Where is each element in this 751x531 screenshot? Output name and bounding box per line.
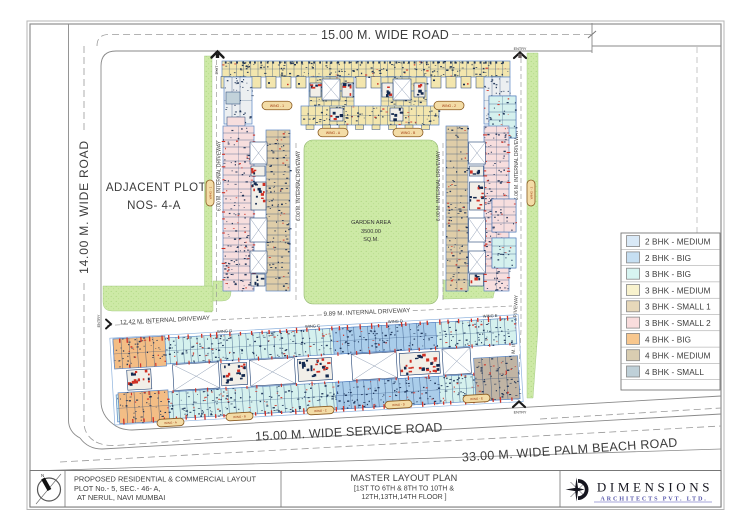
svg-text:PLOT No.- 5, SEC.- 46- A,: PLOT No.- 5, SEC.- 46- A,: [74, 484, 161, 493]
svg-text:WING - 1: WING - 1: [270, 104, 284, 108]
svg-text:6.00 M. INTERNAL DRIVEWAY: 6.00 M. INTERNAL DRIVEWAY: [296, 150, 302, 221]
svg-text:ENTRY: ENTRY: [514, 47, 527, 51]
svg-text:WING G: WING G: [217, 328, 232, 334]
svg-text:WING - C: WING - C: [314, 408, 328, 413]
svg-text:WING - B: WING - B: [233, 414, 246, 419]
svg-text:N: N: [41, 473, 44, 478]
svg-text:WING - B: WING - B: [401, 131, 416, 135]
svg-text:DIMENSIONS: DIMENSIONS: [597, 480, 713, 495]
svg-text:WING - 2: WING - 2: [529, 186, 533, 199]
svg-text:EXIT: EXIT: [214, 65, 219, 74]
svg-text:15.00 M. WIDE ROAD: 15.00 M. WIDE ROAD: [321, 28, 449, 42]
svg-text:ENTRY: ENTRY: [97, 314, 101, 327]
svg-text:4 BHK - MEDIUM: 4 BHK - MEDIUM: [645, 352, 711, 361]
svg-text:WING E: WING E: [483, 313, 498, 319]
svg-text:GARDEN AREA: GARDEN AREA: [351, 220, 391, 226]
svg-text:PROPOSED RESIDENTIAL & COMMERC: PROPOSED RESIDENTIAL & COMMERCIAL LAYOUT: [74, 475, 257, 484]
svg-text:WING - E: WING - E: [470, 396, 483, 401]
svg-text:6.00 M. INTERNAL DRIVEWAY: 6.00 M. INTERNAL DRIVEWAY: [436, 150, 442, 221]
svg-text:3 BHK - SMALL 2: 3 BHK - SMALL 2: [645, 319, 711, 328]
svg-text:MASTER LAYOUT PLAN: MASTER LAYOUT PLAN: [351, 473, 458, 483]
svg-text:2 BHK - MEDIUM: 2 BHK - MEDIUM: [645, 238, 711, 247]
svg-text:AT NERUL, NAVI MUMBAI: AT NERUL, NAVI MUMBAI: [77, 493, 165, 502]
svg-text:12TH,13TH,14TH FLOOR ]: 12TH,13TH,14TH FLOOR ]: [361, 494, 446, 501]
svg-text:14.00 M. WIDE ROAD: 14.00 M. WIDE ROAD: [77, 140, 91, 274]
svg-text:WING D: WING D: [388, 318, 403, 324]
svg-text:3 BHK - BIG: 3 BHK - BIG: [645, 270, 691, 279]
svg-text:4 BHK - BIG: 4 BHK - BIG: [645, 335, 691, 344]
svg-text:ENTRY: ENTRY: [514, 411, 527, 415]
svg-text:6.00 M. INTERNAL DRIVEWAY: 6.00 M. INTERNAL DRIVEWAY: [217, 140, 223, 211]
svg-text:WING - D: WING - D: [392, 402, 406, 407]
svg-text:SQ.M.: SQ.M.: [363, 237, 379, 243]
svg-text:WING C: WING C: [305, 323, 320, 329]
svg-text:[1ST TO 6TH & 8TH TO 10TH &: [1ST TO 6TH & 8TH TO 10TH &: [354, 486, 454, 493]
svg-text:6.06 M. INTERNAL DRIVEWAY: 6.06 M. INTERNAL DRIVEWAY: [514, 129, 520, 200]
svg-text:NOS- 4-A: NOS- 4-A: [127, 200, 181, 212]
svg-text:ADJACENT PLOT: ADJACENT PLOT: [106, 182, 206, 194]
svg-text:ARCHITECTS PVT. LTD.: ARCHITECTS PVT. LTD.: [600, 496, 707, 503]
svg-text:WING - 2: WING - 2: [442, 104, 456, 108]
svg-text:4 BHK - SMALL: 4 BHK - SMALL: [645, 368, 704, 377]
svg-text:3 BHK - MEDIUM: 3 BHK - MEDIUM: [645, 286, 711, 295]
svg-text:WING - 1: WING - 1: [208, 186, 212, 199]
svg-text:WING - A: WING - A: [164, 420, 177, 425]
svg-text:WING - A: WING - A: [326, 131, 341, 135]
svg-text:3 BHK - SMALL 1: 3 BHK - SMALL 1: [645, 303, 711, 312]
svg-text:2 BHK - BIG: 2 BHK - BIG: [645, 254, 691, 263]
svg-text:3500.00: 3500.00: [361, 229, 381, 235]
